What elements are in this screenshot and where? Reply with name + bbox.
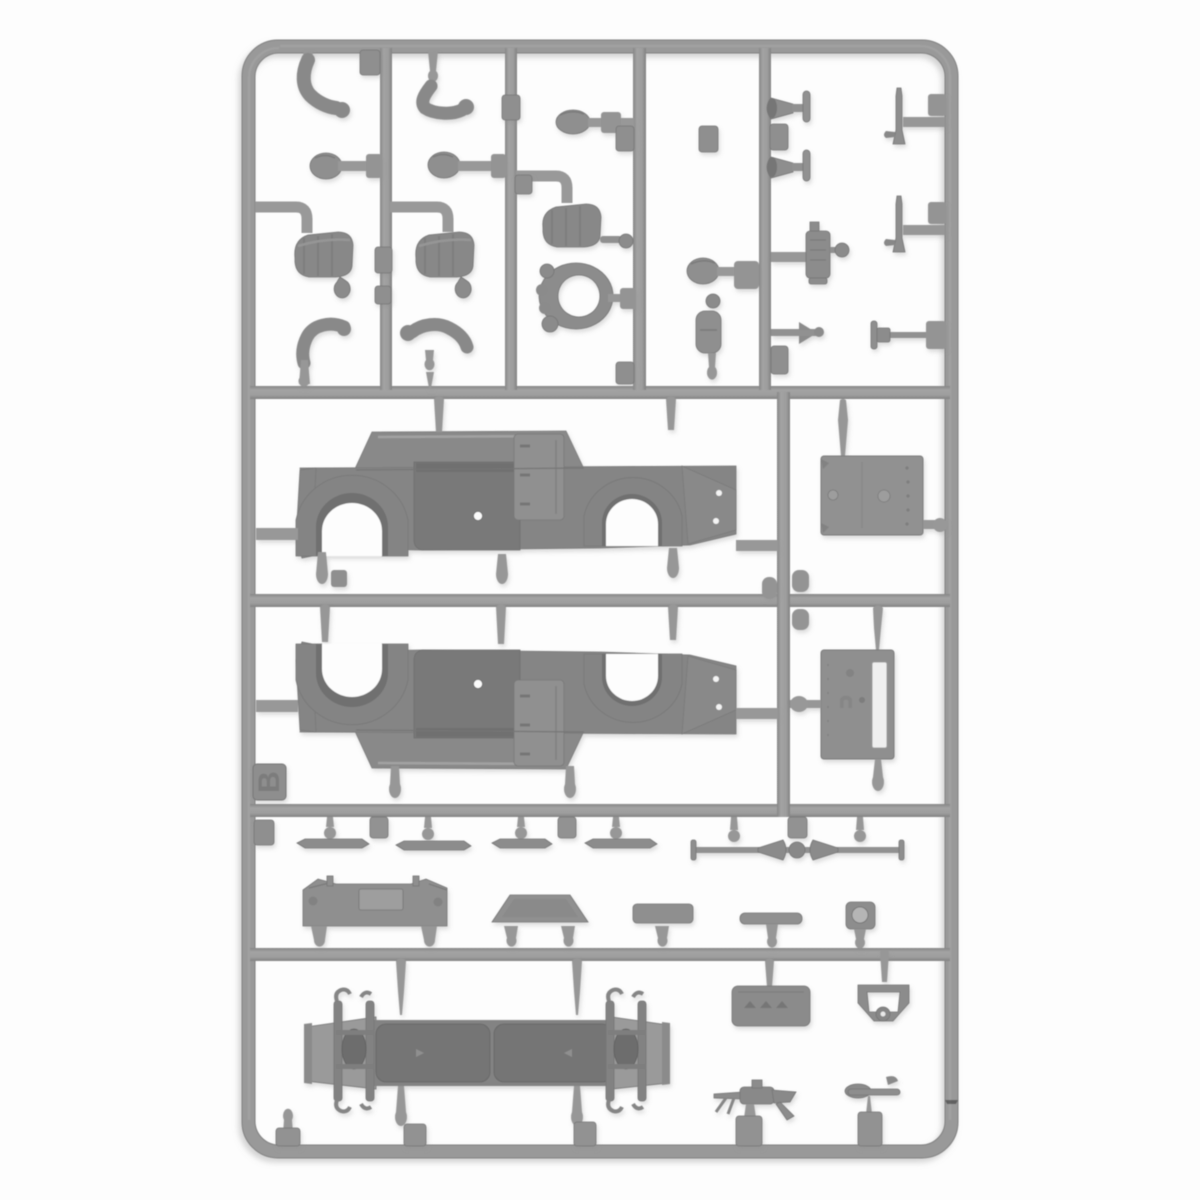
svg-text:B: B — [253, 771, 286, 793]
